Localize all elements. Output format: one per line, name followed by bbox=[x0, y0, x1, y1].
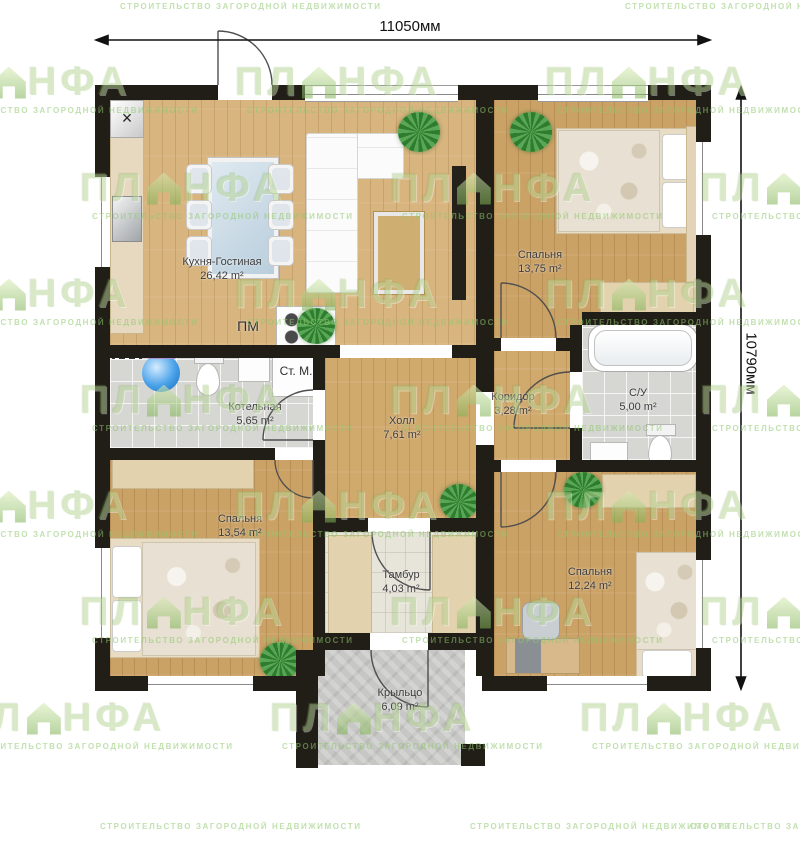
watermark-brand: ПЛНФА bbox=[580, 696, 786, 741]
watermark-tagline: СТРОИТЕЛЬСТВО ЗАГОРОДНОЙ НЕДВИЖИМОСТИ bbox=[0, 742, 234, 751]
room-name: Котельная bbox=[195, 400, 315, 414]
room-name: Спальня bbox=[180, 512, 300, 526]
watermark-brand: ПЛНФА bbox=[700, 590, 800, 635]
room-label-bedroom-tr: Спальня 13,75 m² bbox=[480, 248, 600, 277]
room-label-kitchen: Кухня-Гостиная 26,42 m² bbox=[162, 255, 282, 284]
room-area: 5,00 m² bbox=[578, 400, 698, 414]
window bbox=[95, 177, 110, 267]
watermark-tagline: СТРОИТЕЛЬСТВО ЗАГОРОДНОЙ НЕДВИЖИМОСТИ bbox=[100, 822, 362, 831]
door-opening bbox=[340, 345, 452, 358]
wall-left bbox=[95, 85, 110, 177]
wall-tambour-top bbox=[430, 518, 494, 532]
room-label-corridor: Коридор 3,28 m² bbox=[473, 390, 553, 419]
watermark-tagline: СТРОИТЕЛЬСТВО ЗАГОРОДНОЙ НЕДВИЖИМОСТИ bbox=[712, 212, 800, 221]
dining-chair bbox=[186, 200, 212, 230]
wall-bottom bbox=[647, 676, 711, 691]
watermark-house-logo-icon bbox=[0, 279, 26, 311]
watermark-house-logo-icon bbox=[0, 491, 26, 523]
room-area: 6,09 m² bbox=[340, 700, 460, 714]
toilet bbox=[194, 352, 222, 396]
watermark-house-logo-icon bbox=[0, 67, 26, 99]
coffee-table bbox=[374, 212, 424, 294]
room-name: Крыльцо bbox=[340, 686, 460, 700]
wall-bedroom-br-top bbox=[556, 460, 696, 472]
room-label-tambour: Тамбур 4,03 m² bbox=[341, 568, 461, 597]
room-name: Спальня bbox=[480, 248, 600, 262]
wall-corridor-top bbox=[476, 338, 501, 351]
room-label-boiler: Котельная 5,65 m² bbox=[195, 400, 315, 429]
watermark-tagline: СТРОИТЕЛЬСТВО ЗАГОРОДНОЙ НЕДВИЖИМОСТИ bbox=[712, 424, 800, 433]
wall-left bbox=[95, 267, 110, 548]
watermark-brand: ПЛНФА bbox=[700, 166, 800, 211]
plant-icon bbox=[398, 112, 440, 152]
wall-center-left bbox=[313, 345, 325, 390]
room-name: Тамбур bbox=[341, 568, 461, 582]
door-arc bbox=[218, 31, 272, 85]
wall-tambour-top bbox=[313, 518, 368, 532]
room-area: 3,28 m² bbox=[473, 404, 553, 418]
dimension-height-label: 10790мм bbox=[743, 329, 760, 399]
wall-kitchen-bottom bbox=[110, 345, 340, 358]
wall-bedroom-br-top bbox=[476, 460, 501, 472]
kitchen-sink bbox=[112, 196, 142, 242]
room-area: 13,75 m² bbox=[480, 262, 600, 276]
room-label-bedroom-br: Спальня 12,24 m² bbox=[530, 565, 650, 594]
watermark-tagline: СТРОИТЕЛЬСТВО ЗАГОРОДНОЙ НЕДВИЖИМОСТИ bbox=[120, 2, 382, 11]
window bbox=[305, 85, 458, 102]
watermark-tagline: СТРОИТЕЛЬСТВО ЗАГОРОДНОЙ НЕДВИЖИМОСТИ bbox=[690, 822, 800, 831]
rug-hatched bbox=[600, 282, 694, 314]
room-area: 12,24 m² bbox=[530, 579, 650, 593]
watermark-tagline: СТРОИТЕЛЬСТВО ЗАГОРОДНОЙ НЕДВИЖИМОСТИ bbox=[592, 742, 800, 751]
room-area: 7,61 m² bbox=[342, 428, 462, 442]
room-name: Коридор bbox=[473, 390, 553, 404]
watermark-tagline: СТРОИТЕЛЬСТВО ЗАГОРОДНОЙ НЕДВИЖИМОСТИ bbox=[625, 2, 800, 11]
office-chair bbox=[522, 602, 560, 640]
plant-icon bbox=[510, 112, 552, 152]
room-name: С/У bbox=[578, 386, 698, 400]
sofa-left-section bbox=[306, 133, 358, 293]
window bbox=[95, 548, 110, 638]
window bbox=[538, 85, 648, 102]
tv-unit bbox=[452, 166, 466, 300]
wall-boiler-bottom bbox=[110, 448, 275, 460]
washing-machine-label: Ст. М. bbox=[275, 364, 317, 378]
room-name: Холл bbox=[342, 414, 462, 428]
wall-kitchen-bottom bbox=[452, 345, 476, 358]
stove-label: ПМ bbox=[226, 318, 270, 334]
room-area: 13,54 m² bbox=[180, 526, 300, 540]
wall-tambour-bottom bbox=[313, 633, 370, 650]
bathtub bbox=[588, 324, 698, 372]
plant-icon bbox=[260, 642, 300, 680]
wall-tambour-bottom bbox=[428, 633, 487, 650]
watermark-tagline: СТРОИТЕЛЬСТВО ЗАГОРОДНОЙ НЕДВИЖИМОСТИ bbox=[712, 636, 800, 645]
wall-bottom bbox=[95, 676, 148, 691]
bed-pillow bbox=[642, 650, 692, 678]
bed-pillow bbox=[112, 600, 142, 652]
room-label-bathroom: С/У 5,00 m² bbox=[578, 386, 698, 415]
door-opening bbox=[218, 85, 272, 100]
watermark-house-logo-icon bbox=[27, 703, 61, 735]
window bbox=[547, 676, 647, 691]
plant-icon bbox=[297, 308, 335, 344]
watermark-brand: ПЛНФА bbox=[0, 696, 166, 741]
door-opening bbox=[370, 633, 428, 650]
wall-right bbox=[696, 235, 711, 560]
room-area: 26,42 m² bbox=[162, 269, 282, 283]
door-opening bbox=[501, 460, 556, 472]
dimension-width-label: 11050мм bbox=[350, 18, 470, 35]
window bbox=[696, 560, 711, 648]
room-name: Кухня-Гостиная bbox=[162, 255, 282, 269]
door-opening bbox=[501, 338, 556, 351]
door-opening bbox=[368, 518, 430, 532]
watermark-house-logo-icon bbox=[767, 597, 800, 629]
floor-plan-canvas: × Ст. М. bbox=[0, 0, 800, 845]
room-area: 5,65 m² bbox=[195, 414, 315, 428]
vent-shaft: × bbox=[110, 100, 144, 138]
plant-icon bbox=[564, 472, 602, 508]
bed-pillow bbox=[112, 546, 142, 598]
wall-top bbox=[95, 85, 218, 100]
watermark-house-logo-icon bbox=[767, 173, 800, 205]
door-opening bbox=[275, 448, 313, 460]
dining-chair bbox=[186, 164, 212, 194]
window bbox=[148, 676, 253, 691]
wall-top bbox=[272, 85, 305, 100]
dining-chair bbox=[268, 200, 294, 230]
wall-bathroom-left bbox=[570, 325, 582, 372]
room-name: Спальня bbox=[530, 565, 650, 579]
room-area: 4,03 m² bbox=[341, 582, 461, 596]
bed-blanket bbox=[558, 130, 660, 232]
wall-bottom bbox=[482, 676, 547, 691]
porch-pillar bbox=[461, 744, 485, 766]
bed-blanket bbox=[142, 542, 256, 656]
watermark-tagline: СТРОИТЕЛЬСТВО ЗАГОРОДНОЙ НЕДВИЖИМОСТИ bbox=[470, 822, 732, 831]
water-heater bbox=[142, 354, 180, 392]
plant-icon bbox=[440, 484, 478, 520]
wardrobe-hatched bbox=[602, 474, 696, 508]
watermark-house-logo-icon bbox=[647, 703, 681, 735]
room-label-bedroom-bl: Спальня 13,54 m² bbox=[180, 512, 300, 541]
wall-bathroom-top bbox=[582, 312, 696, 325]
watermark-house-logo-icon bbox=[767, 385, 800, 417]
wall-right bbox=[696, 85, 711, 142]
desk bbox=[506, 638, 580, 674]
wall-top bbox=[458, 85, 538, 100]
window bbox=[696, 142, 711, 235]
dining-chair bbox=[268, 164, 294, 194]
room-label-hall: Холл 7,61 m² bbox=[342, 414, 462, 443]
room-label-porch: Крыльцо 6,09 m² bbox=[340, 686, 460, 715]
